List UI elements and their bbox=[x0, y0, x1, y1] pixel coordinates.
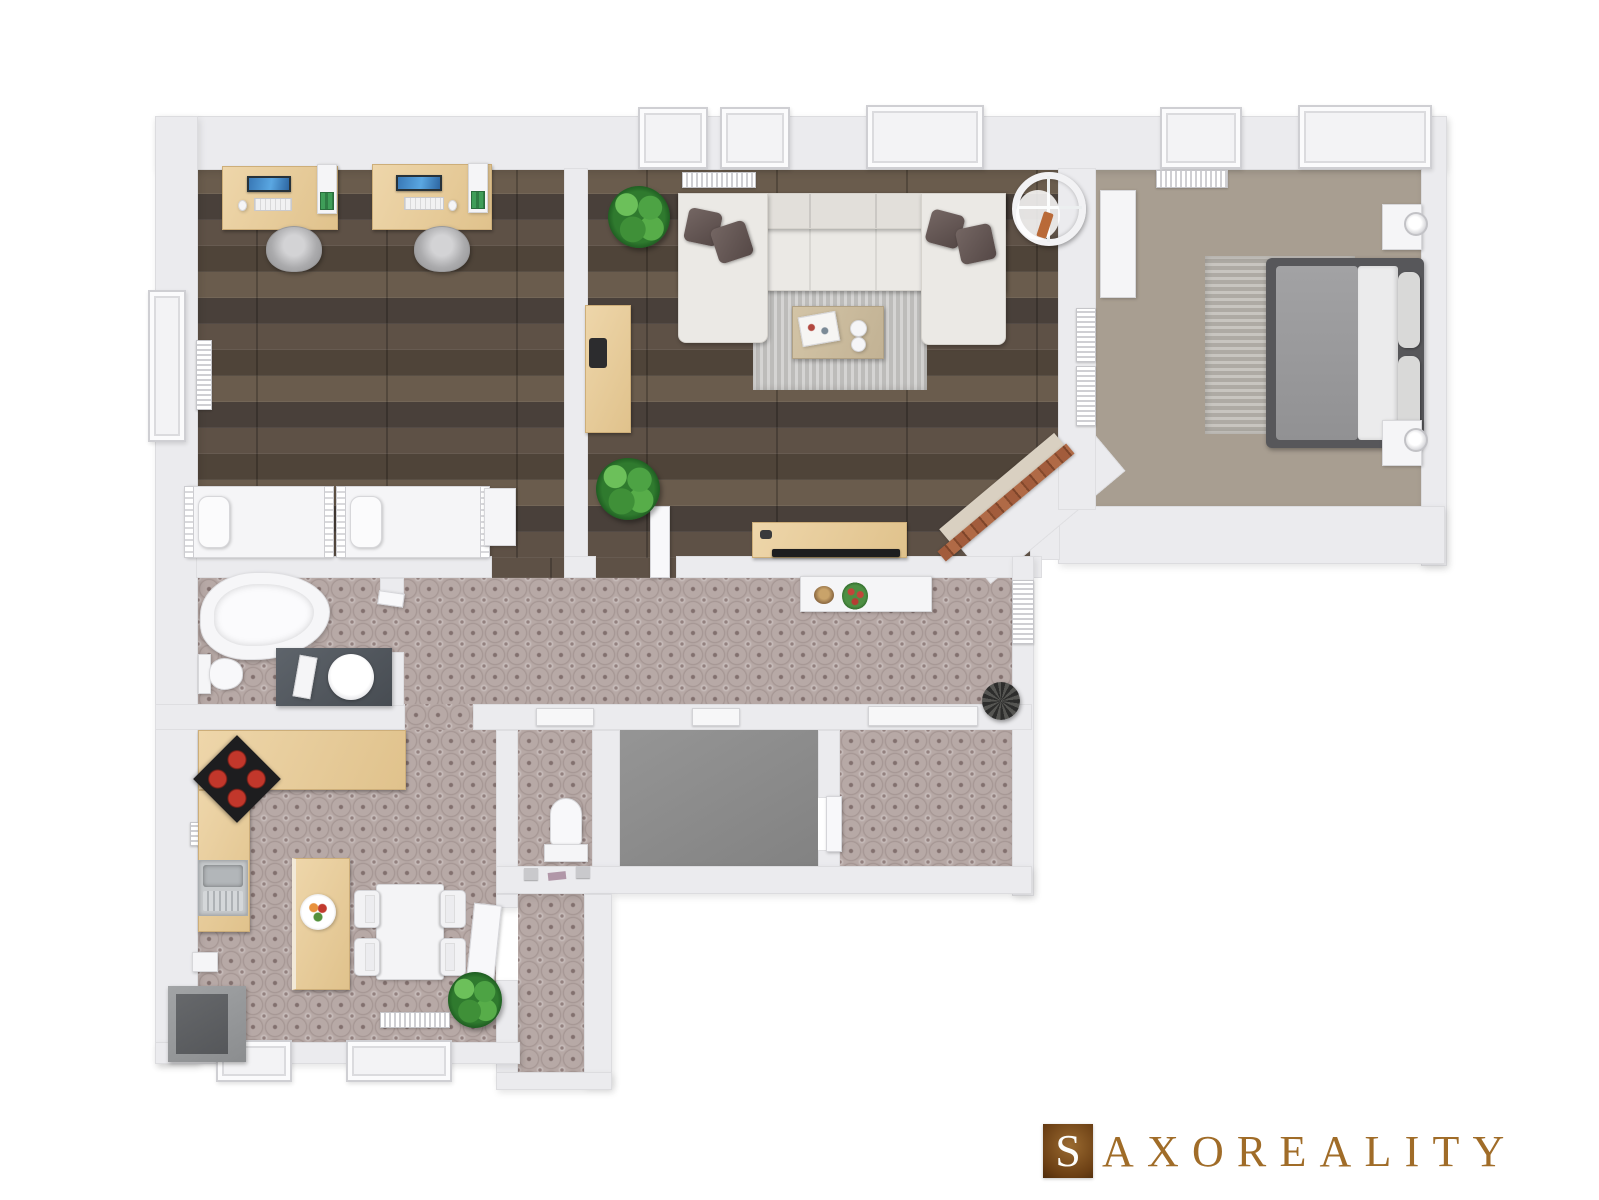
tv-decor-vase bbox=[760, 530, 772, 539]
kitchen-window-2 bbox=[346, 1040, 452, 1082]
nightstand-lamp-1 bbox=[1404, 212, 1428, 236]
storage-closet-divider-a bbox=[818, 730, 840, 798]
office-window bbox=[148, 290, 186, 442]
living-room-door-leaf bbox=[650, 506, 670, 578]
floor-plan: S AXOREALITY bbox=[0, 0, 1599, 1200]
wc-toilet-bowl bbox=[550, 798, 582, 846]
logo-wordmark: AXOREALITY bbox=[1102, 1128, 1518, 1176]
bedroom-radiator-left-2 bbox=[1076, 366, 1096, 426]
double-bed-sheet bbox=[1358, 266, 1398, 440]
keyboard-1 bbox=[254, 198, 292, 211]
exterior-wall-right bbox=[1421, 116, 1447, 566]
logo-mark: S bbox=[1043, 1124, 1093, 1178]
storage-room-floor bbox=[618, 730, 818, 866]
mouse-1 bbox=[238, 200, 247, 211]
bed-1-frame-right bbox=[324, 486, 334, 558]
wc-transom-window bbox=[536, 708, 594, 726]
wc-shelf-item-2 bbox=[576, 866, 590, 878]
kitchen-small-appliance bbox=[192, 952, 218, 972]
bedroom-radiator-top bbox=[1156, 170, 1228, 188]
hallway-kitchen-opening-floor bbox=[405, 704, 473, 732]
books-icon-2 bbox=[471, 191, 485, 209]
entrance-door bbox=[1012, 580, 1034, 644]
bathroom-kitchen-wall bbox=[155, 704, 405, 730]
closet-room-floor bbox=[840, 730, 1012, 866]
dining-chair-2 bbox=[354, 938, 380, 976]
headboard-cushion-1 bbox=[1398, 272, 1420, 348]
hallway-top-wall-seg3 bbox=[676, 556, 1042, 578]
fruit-bowl bbox=[300, 894, 336, 930]
coffee-cup bbox=[851, 337, 866, 352]
living-sideboard bbox=[585, 305, 631, 433]
bedroom-radiator-left-1 bbox=[1076, 308, 1096, 362]
closet-transom-window bbox=[868, 706, 978, 726]
bathroom-toilet-bowl bbox=[209, 658, 243, 690]
dining-table bbox=[376, 884, 444, 980]
corridor-bottom-wall bbox=[496, 1072, 612, 1090]
sink-basin bbox=[203, 865, 243, 887]
logo-rest: AXOREALITY bbox=[1102, 1127, 1518, 1176]
exterior-wall-top bbox=[155, 116, 1445, 170]
logo-initial: S bbox=[1055, 1125, 1081, 1176]
sink-drainer bbox=[203, 891, 243, 911]
office-radiator bbox=[196, 340, 212, 410]
hall-bowl bbox=[814, 586, 834, 604]
monitor-1 bbox=[247, 176, 291, 192]
bed-1-frame-left bbox=[184, 486, 194, 558]
corridor-right-wall bbox=[584, 894, 612, 1086]
kitchen-plant-icon bbox=[448, 972, 502, 1028]
kitchen-radiator bbox=[380, 1012, 450, 1028]
living-window-1 bbox=[638, 107, 708, 169]
bed-2-pillow bbox=[350, 496, 382, 548]
vanity-sink bbox=[328, 654, 374, 700]
bed-1-pillow bbox=[198, 496, 230, 548]
wc-shelf-item-1 bbox=[524, 868, 538, 880]
mouse-2 bbox=[448, 200, 457, 211]
bed-2-frame-left bbox=[336, 486, 346, 558]
office-cabinet bbox=[484, 488, 516, 546]
coffee-pot bbox=[850, 320, 867, 337]
hall-dark-plant-stand bbox=[982, 682, 1020, 720]
living-plant-top-icon bbox=[608, 186, 670, 248]
dining-chair-1 bbox=[354, 890, 380, 928]
fridge-front bbox=[176, 994, 228, 1054]
office-chair-2 bbox=[414, 226, 470, 272]
wc-toilet-tank bbox=[544, 844, 588, 862]
living-window-3 bbox=[866, 105, 984, 169]
keyboard-2 bbox=[404, 197, 444, 210]
bedroom-window-1 bbox=[1160, 107, 1242, 169]
books-icon-1 bbox=[320, 192, 334, 210]
sofa-pillow-4 bbox=[955, 223, 998, 266]
office-door-threshold bbox=[492, 558, 564, 578]
living-window-2 bbox=[720, 107, 790, 169]
living-plant-bottom-icon bbox=[596, 458, 660, 520]
living-radiator bbox=[682, 172, 756, 188]
closet-door-leaf bbox=[826, 796, 842, 852]
nightstand-lamp-2 bbox=[1404, 428, 1428, 452]
exterior-wall-left bbox=[155, 116, 198, 1064]
bedroom-window-2 bbox=[1298, 105, 1432, 169]
hallway-top-wall-seg2 bbox=[564, 556, 596, 578]
corridor-floor bbox=[518, 894, 584, 1072]
sideboard-speaker bbox=[589, 338, 607, 368]
hall-flowers bbox=[842, 582, 868, 610]
dining-chair-4 bbox=[440, 938, 466, 976]
dining-chair-3 bbox=[440, 890, 466, 928]
tv bbox=[772, 549, 900, 557]
office-chair-1 bbox=[266, 226, 322, 272]
storage-transom-window bbox=[692, 708, 740, 726]
double-bed-duvet bbox=[1276, 266, 1358, 440]
bedroom-bottom-wall bbox=[1058, 506, 1445, 564]
bedroom-wardrobe bbox=[1100, 190, 1136, 298]
monitor-2 bbox=[396, 175, 442, 191]
